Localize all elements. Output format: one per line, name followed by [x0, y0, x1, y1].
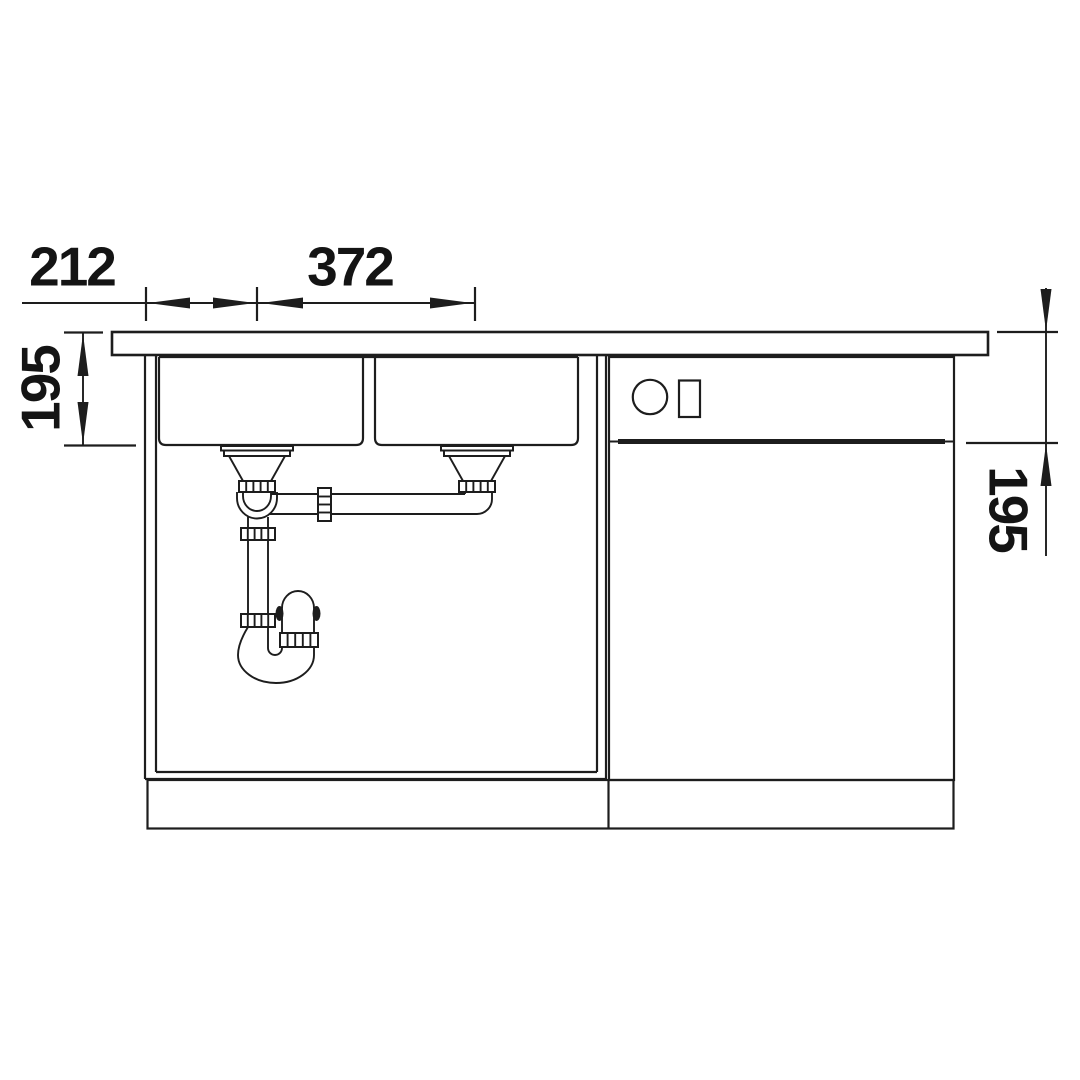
- trap-standpipe: [276, 591, 321, 647]
- countertop: [112, 332, 988, 355]
- left-drain-fitting: [221, 446, 293, 492]
- pipe-union-nut: [318, 488, 331, 521]
- control-knob-circle: [633, 380, 667, 414]
- arrow-left-icon: [148, 298, 190, 309]
- arrow-down-icon: [1041, 289, 1052, 331]
- drain-plumbing: [221, 446, 513, 683]
- arrow-down-icon: [78, 402, 89, 444]
- arrow-up-icon: [1041, 444, 1052, 486]
- clamp-wing-right: [313, 606, 321, 621]
- plinth: [148, 780, 954, 829]
- technical-drawing-canvas: 212 372 195 195: [0, 0, 1080, 1080]
- right-drain-elbow: [465, 492, 492, 514]
- sink-bowls: [159, 357, 578, 445]
- right-bowl: [375, 357, 578, 445]
- arrow-left-icon: [261, 298, 303, 309]
- dimension-left: [64, 333, 136, 446]
- arrow-up-icon: [78, 334, 89, 376]
- panel-divider-bar: [618, 439, 945, 444]
- sink-cabinet-line-art: [0, 0, 1080, 1080]
- dim-label-195-right: 195: [981, 466, 1036, 552]
- dim-label-212: 212: [29, 240, 115, 295]
- arrow-right-icon: [430, 298, 472, 309]
- pipe-nut-upper: [241, 528, 275, 540]
- gooseneck-cap: [282, 591, 314, 608]
- left-bowl: [159, 357, 363, 445]
- clamp-wing-left: [276, 606, 284, 621]
- dim-label-372: 372: [307, 240, 393, 295]
- arrow-right-icon: [213, 298, 255, 309]
- standpipe-nut: [280, 633, 318, 647]
- right-appliance-cabinet: [609, 357, 954, 780]
- pipe-nut-lower: [241, 614, 275, 627]
- control-switch-rect: [679, 381, 700, 418]
- dim-label-195-left: 195: [14, 346, 69, 432]
- right-drain-fitting: [441, 446, 513, 492]
